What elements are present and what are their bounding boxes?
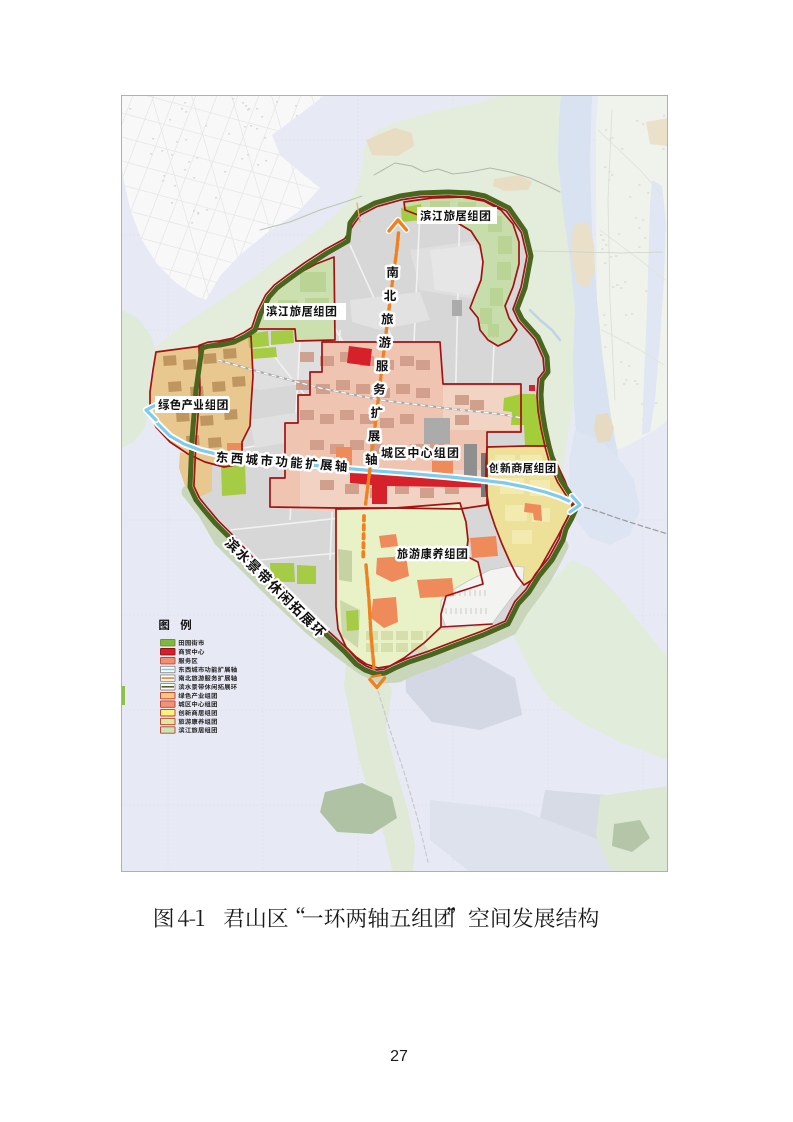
svg-text:27: 27 <box>390 1048 408 1065</box>
